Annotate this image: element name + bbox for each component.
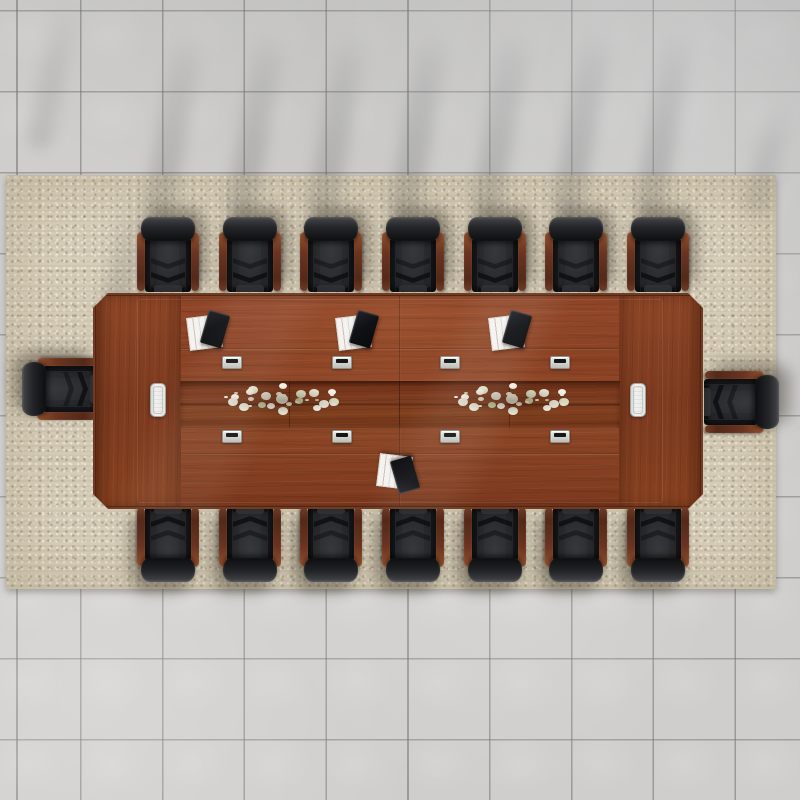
- chair-headrest: [468, 217, 522, 241]
- cable-grommet: [332, 356, 352, 369]
- table-access-panel: [150, 383, 166, 417]
- chair-stitch-chevron: [641, 272, 675, 283]
- chair-stitch-chevron: [641, 287, 675, 292]
- chair-stitch-chevron: [559, 516, 593, 527]
- cable-grommet: [222, 356, 242, 369]
- office-chair: [466, 218, 524, 292]
- chair-stitch-chevron: [233, 272, 267, 283]
- chair-stitch-chevron: [396, 287, 430, 292]
- table-access-panel: [630, 383, 646, 417]
- chair-stitch-chevron: [396, 272, 430, 283]
- chair-stitch-chevron: [233, 258, 267, 269]
- conference-room-scene: [0, 0, 800, 800]
- chair-armrest: [464, 232, 472, 291]
- chair-headrest: [755, 375, 779, 429]
- chair-stitch-chevron: [478, 287, 512, 292]
- chair-stitch-chevron: [314, 516, 348, 527]
- chair-backrest: [553, 507, 599, 565]
- chair-headrest: [141, 217, 195, 241]
- chair-armrest: [518, 508, 526, 567]
- chair-backrest: [635, 507, 681, 565]
- chair-stitch-chevron: [151, 272, 185, 283]
- chair-stitch-chevron: [727, 385, 738, 419]
- chair-armrest: [705, 371, 764, 379]
- chair-armrest: [219, 232, 227, 291]
- chair-armrest: [627, 232, 635, 291]
- chair-headrest: [549, 217, 603, 241]
- grommet-slot: [226, 359, 238, 363]
- chair-armrest: [518, 232, 526, 291]
- office-chair: [629, 218, 687, 292]
- chair-stitch-chevron: [63, 372, 74, 406]
- office-chair: [466, 507, 524, 581]
- office-chair: [302, 507, 360, 581]
- cable-grommet: [440, 430, 460, 443]
- chair-stitch-chevron: [559, 258, 593, 269]
- cable-grommet: [222, 430, 242, 443]
- chair-armrest: [273, 232, 281, 291]
- chair-backrest: [145, 234, 191, 292]
- floral-centerpiece: [506, 394, 518, 404]
- chair-armrest: [545, 508, 553, 567]
- table-access-panel-inner: [153, 386, 163, 414]
- chair-backrest: [145, 507, 191, 565]
- office-chair: [629, 507, 687, 581]
- chair-headrest: [386, 217, 440, 241]
- chair-stitch-chevron: [559, 530, 593, 541]
- grommet-slot: [554, 433, 566, 437]
- chair-stitch-chevron: [151, 287, 185, 292]
- chair-armrest: [599, 232, 607, 291]
- chair-stitch-chevron: [314, 530, 348, 541]
- chair-headrest: [468, 558, 522, 582]
- cable-grommet: [550, 430, 570, 443]
- chair-armrest: [273, 508, 281, 567]
- chair-armrest: [436, 232, 444, 291]
- shadow-streak: [25, 0, 82, 151]
- chair-headrest: [22, 362, 46, 416]
- chair-headrest: [141, 558, 195, 582]
- chair-stitch-chevron: [314, 272, 348, 283]
- conference-table: [93, 293, 703, 509]
- chair-headrest: [223, 217, 277, 241]
- chair-armrest: [137, 232, 145, 291]
- chair-stitch-chevron: [77, 372, 88, 406]
- chair-armrest: [599, 508, 607, 567]
- chair-stitch-chevron: [713, 385, 724, 419]
- office-chair: [23, 360, 97, 418]
- chair-stitch-chevron: [559, 287, 593, 292]
- chair-armrest: [191, 508, 199, 567]
- chair-stitch-chevron: [396, 258, 430, 269]
- grommet-slot: [444, 359, 456, 363]
- chair-backrest: [308, 234, 354, 292]
- chair-stitch-chevron: [641, 258, 675, 269]
- chair-backrest: [553, 234, 599, 292]
- chair-stitch-chevron: [478, 272, 512, 283]
- chair-armrest: [627, 508, 635, 567]
- chair-stitch-chevron: [396, 530, 430, 541]
- notepad-set: [188, 313, 232, 353]
- notepad-set: [337, 313, 381, 353]
- notepad-set: [490, 313, 534, 353]
- chair-armrest: [137, 508, 145, 567]
- chair-backrest: [390, 234, 436, 292]
- office-chair: [139, 218, 197, 292]
- office-chair: [704, 373, 778, 431]
- chair-armrest: [705, 425, 764, 433]
- chair-headrest: [223, 558, 277, 582]
- table-access-panel-inner: [633, 386, 643, 414]
- chair-stitch-chevron: [314, 287, 348, 292]
- office-chair: [302, 218, 360, 292]
- chair-stitch-chevron: [478, 530, 512, 541]
- chair-armrest: [464, 508, 472, 567]
- chair-backrest: [227, 507, 273, 565]
- chair-armrest: [382, 232, 390, 291]
- chair-backrest: [39, 366, 97, 412]
- chair-stitch-chevron: [233, 287, 267, 292]
- chair-backrest: [704, 379, 762, 425]
- office-chair: [221, 507, 279, 581]
- office-chair: [139, 507, 197, 581]
- chair-headrest: [386, 558, 440, 582]
- chair-stitch-chevron: [233, 530, 267, 541]
- cable-grommet: [550, 356, 570, 369]
- chair-stitch-chevron: [396, 516, 430, 527]
- chair-backrest: [472, 507, 518, 565]
- chair-stitch-chevron: [151, 258, 185, 269]
- chair-stitch-chevron: [559, 272, 593, 283]
- chair-armrest: [219, 508, 227, 567]
- chair-headrest: [549, 558, 603, 582]
- chair-backrest: [390, 507, 436, 565]
- chair-stitch-chevron: [641, 516, 675, 527]
- cable-grommet: [440, 356, 460, 369]
- grommet-slot: [336, 359, 348, 363]
- chair-armrest: [354, 508, 362, 567]
- chair-backrest: [308, 507, 354, 565]
- chair-stitch-chevron: [704, 385, 709, 419]
- chair-armrest: [37, 358, 96, 366]
- office-chair: [384, 218, 442, 292]
- chair-headrest: [304, 558, 358, 582]
- chair-stitch-chevron: [478, 258, 512, 269]
- chair-armrest: [681, 508, 689, 567]
- chair-stitch-chevron: [478, 516, 512, 527]
- grommet-slot: [554, 359, 566, 363]
- chair-armrest: [354, 232, 362, 291]
- office-chair: [547, 218, 605, 292]
- cable-grommet: [332, 430, 352, 443]
- grommet-slot: [444, 433, 456, 437]
- chair-stitch-chevron: [641, 530, 675, 541]
- shadow-streak: [741, 91, 796, 219]
- chair-armrest: [382, 508, 390, 567]
- chair-stitch-chevron: [151, 516, 185, 527]
- chair-armrest: [300, 508, 308, 567]
- chair-stitch-chevron: [233, 516, 267, 527]
- grommet-slot: [226, 433, 238, 437]
- chair-stitch-chevron: [314, 258, 348, 269]
- chair-headrest: [631, 217, 685, 241]
- office-chair: [384, 507, 442, 581]
- chair-armrest: [436, 508, 444, 567]
- chair-backrest: [635, 234, 681, 292]
- office-chair: [547, 507, 605, 581]
- notepad-set: [378, 451, 422, 491]
- chair-armrest: [545, 232, 553, 291]
- chair-armrest: [300, 232, 308, 291]
- chair-armrest: [37, 412, 96, 420]
- floral-centerpiece: [276, 394, 288, 404]
- chair-stitch-chevron: [151, 530, 185, 541]
- chair-backrest: [472, 234, 518, 292]
- chair-armrest: [191, 232, 199, 291]
- chair-headrest: [631, 558, 685, 582]
- chair-headrest: [304, 217, 358, 241]
- chair-armrest: [681, 232, 689, 291]
- office-chair: [221, 218, 279, 292]
- tablet-device: [390, 456, 421, 495]
- chair-backrest: [227, 234, 273, 292]
- grommet-slot: [336, 433, 348, 437]
